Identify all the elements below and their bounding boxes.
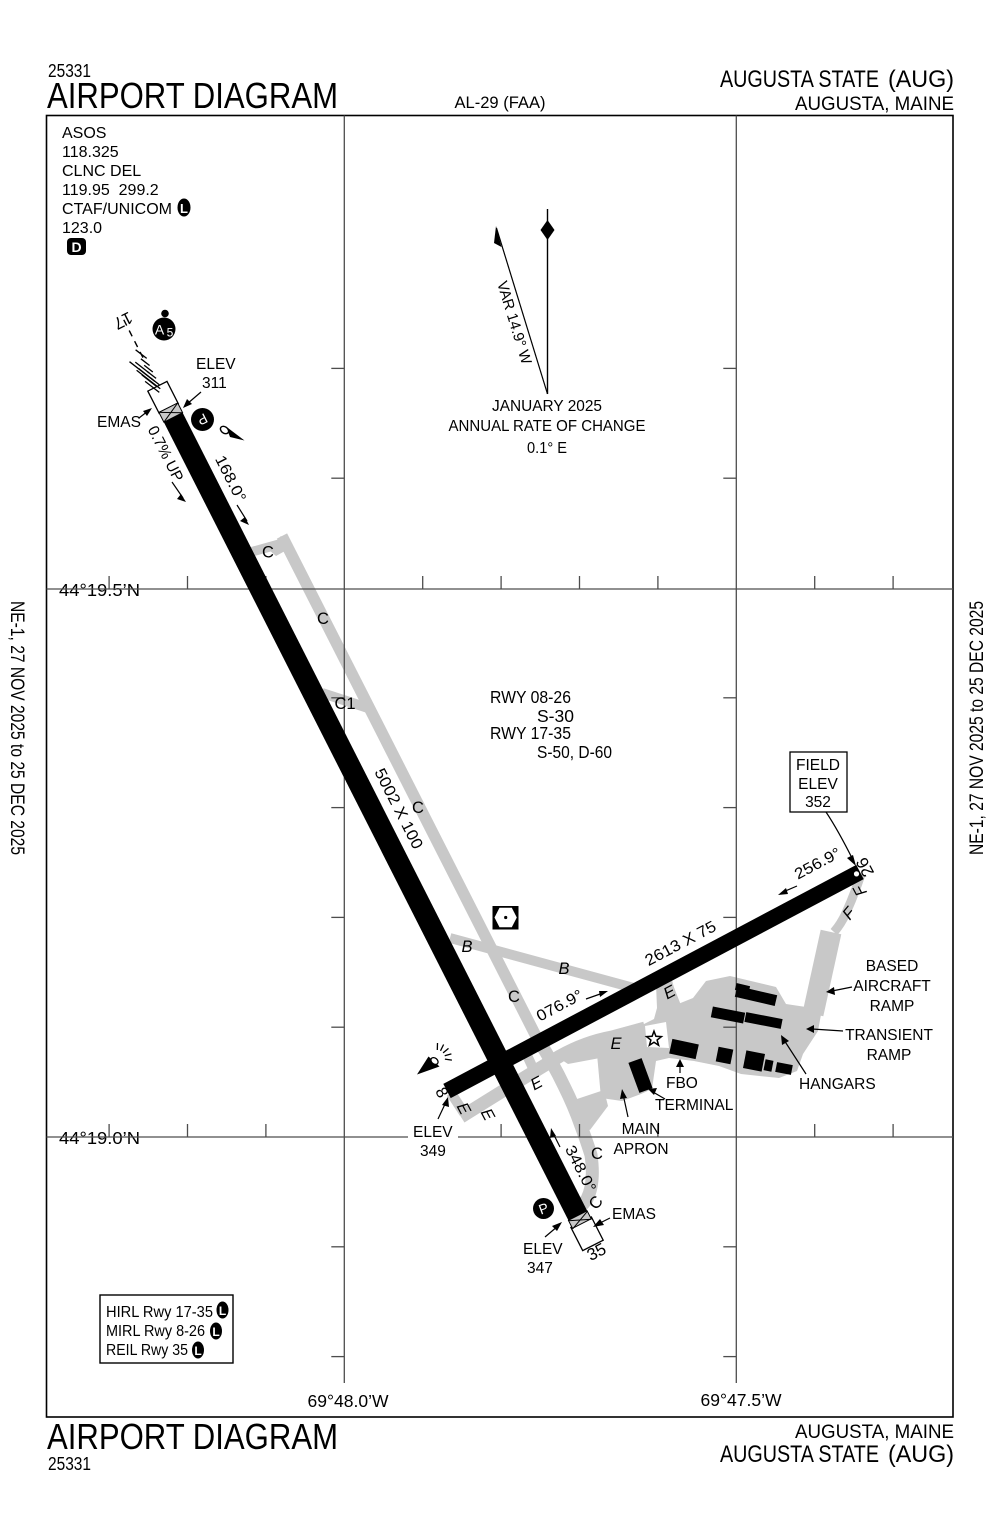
svg-text:L: L xyxy=(219,1304,226,1318)
svg-text:ASOS: ASOS xyxy=(62,125,106,142)
svg-text:347: 347 xyxy=(527,1260,553,1277)
svg-text:AUGUSTA STATE: AUGUSTA STATE xyxy=(720,66,879,93)
svg-text:0.1° E: 0.1° E xyxy=(527,440,567,457)
svg-text:C: C xyxy=(262,544,274,562)
svg-text:RAMP: RAMP xyxy=(870,998,915,1015)
svg-text:AUGUSTA, MAINE: AUGUSTA, MAINE xyxy=(795,1421,954,1443)
svg-text:MIRL Rwy 8-26: MIRL Rwy 8-26 xyxy=(106,1323,205,1340)
svg-text:HIRL Rwy 17-35: HIRL Rwy 17-35 xyxy=(106,1304,213,1321)
svg-text:(AUG): (AUG) xyxy=(888,1441,954,1468)
svg-text:B: B xyxy=(461,938,472,956)
svg-text:352: 352 xyxy=(805,794,831,811)
svg-text:311: 311 xyxy=(202,375,227,392)
svg-text:AIRCRAFT: AIRCRAFT xyxy=(853,978,931,995)
svg-text:AL-29 (FAA): AL-29 (FAA) xyxy=(455,94,546,112)
svg-text:JANUARY 2025: JANUARY 2025 xyxy=(492,398,602,415)
svg-text:C: C xyxy=(412,799,424,817)
svg-text:E: E xyxy=(610,1035,622,1053)
svg-text:ELEV: ELEV xyxy=(196,356,236,373)
svg-text:118.325: 118.325 xyxy=(62,144,119,161)
svg-text:D: D xyxy=(71,239,81,255)
svg-text:5: 5 xyxy=(167,326,174,340)
svg-text:C: C xyxy=(508,988,520,1006)
svg-text:L: L xyxy=(180,201,188,216)
svg-text:AUGUSTA STATE: AUGUSTA STATE xyxy=(720,1441,879,1468)
svg-text:ANNUAL RATE OF CHANGE: ANNUAL RATE OF CHANGE xyxy=(449,418,646,435)
svg-text:A: A xyxy=(155,322,165,338)
svg-text:B: B xyxy=(558,960,569,978)
svg-text:NE-1, 27 NOV 2025 to 25 DEC: NE-1, 27 NOV 2025 to 25 DEC 2025 xyxy=(967,601,988,855)
svg-text:NE-1, 27 NOV 2025 to 25 DEC: NE-1, 27 NOV 2025 to 25 DEC 2025 xyxy=(6,601,27,855)
svg-text:FBO: FBO xyxy=(666,1075,698,1092)
svg-text:TERMINAL: TERMINAL xyxy=(655,1097,734,1114)
svg-text:RWY 17-35: RWY 17-35 xyxy=(490,723,571,743)
svg-text:69°47.5’W: 69°47.5’W xyxy=(701,1390,782,1410)
svg-text:RWY 08-26: RWY 08-26 xyxy=(490,687,571,707)
svg-text:TRANSIENT: TRANSIENT xyxy=(845,1027,933,1044)
svg-text:L: L xyxy=(194,1344,201,1358)
svg-text:MAIN: MAIN xyxy=(622,1121,661,1138)
svg-text:349: 349 xyxy=(420,1143,446,1160)
svg-text:C: C xyxy=(591,1145,603,1163)
svg-text:ELEV: ELEV xyxy=(523,1241,563,1258)
svg-text:25331: 25331 xyxy=(48,1453,91,1474)
svg-text:119.95 299.2: 119.95 299.2 xyxy=(62,182,159,199)
svg-text:APRON: APRON xyxy=(613,1141,668,1158)
svg-text:AIRPORT DIAGRAM: AIRPORT DIAGRAM xyxy=(47,75,338,116)
svg-text:ELEV: ELEV xyxy=(798,776,838,793)
svg-text:AUGUSTA, MAINE: AUGUSTA, MAINE xyxy=(795,93,954,115)
svg-text:44°19.0’N: 44°19.0’N xyxy=(59,1128,140,1148)
svg-text:S-50, D-60: S-50, D-60 xyxy=(537,742,612,762)
svg-text:CTAF/UNICOM: CTAF/UNICOM xyxy=(62,201,172,218)
svg-text:AIRPORT DIAGRAM: AIRPORT DIAGRAM xyxy=(47,1416,338,1457)
svg-text:(AUG): (AUG) xyxy=(888,66,954,93)
svg-text:44°19.5’N: 44°19.5’N xyxy=(59,580,140,600)
svg-text:CLNC DEL: CLNC DEL xyxy=(62,163,141,180)
svg-text:HANGARS: HANGARS xyxy=(799,1076,876,1093)
svg-text:RAMP: RAMP xyxy=(867,1047,912,1064)
svg-text:C: C xyxy=(317,610,329,628)
svg-text:BASED: BASED xyxy=(866,958,919,975)
svg-text:FIELD: FIELD xyxy=(796,757,840,774)
svg-text:L: L xyxy=(212,1325,219,1339)
svg-text:EMAS: EMAS xyxy=(97,414,141,431)
svg-text:69°48.0’W: 69°48.0’W xyxy=(308,1391,389,1411)
svg-text:123.0: 123.0 xyxy=(62,220,102,237)
svg-text:ELEV: ELEV xyxy=(413,1124,453,1141)
svg-text:C1: C1 xyxy=(334,695,355,713)
svg-text:REIL Rwy 35: REIL Rwy 35 xyxy=(106,1342,188,1359)
svg-text:EMAS: EMAS xyxy=(612,1206,656,1223)
